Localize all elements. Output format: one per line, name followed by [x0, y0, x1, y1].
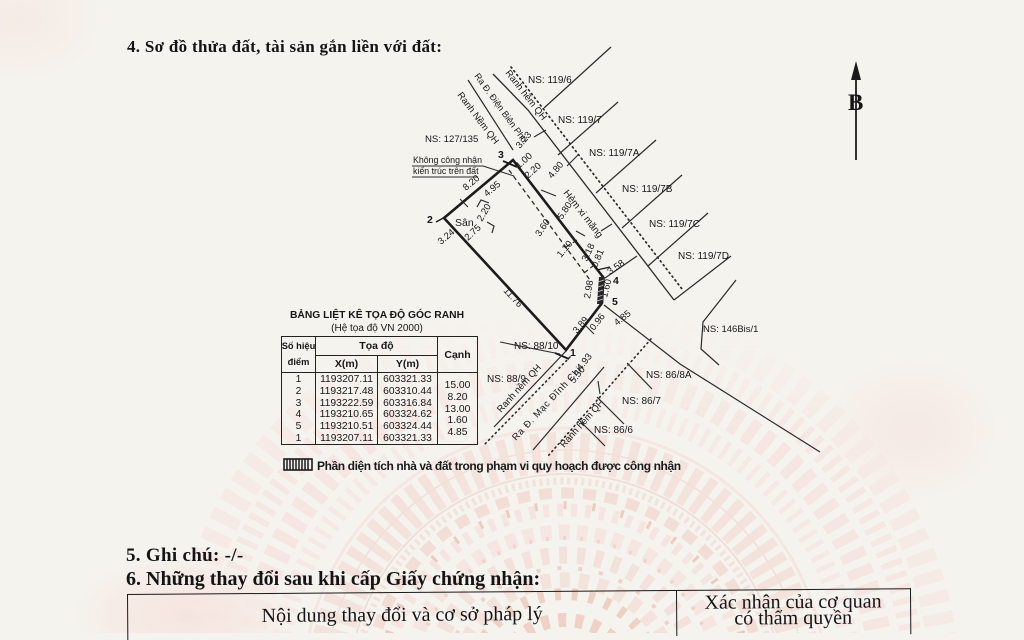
svg-text:Phần diện tích nhà và đất tron: Phần diện tích nhà và đất trong phạm vi …: [317, 459, 681, 473]
svg-text:2: 2: [427, 214, 433, 226]
svg-text:4.80: 4.80: [546, 160, 566, 181]
svg-text:NS: 88/10: NS: 88/10: [514, 341, 559, 352]
svg-text:NS: 119/7B: NS: 119/7B: [622, 184, 673, 195]
svg-text:kiến trúc trên đất: kiến trúc trên đất: [413, 166, 479, 176]
svg-text:11.76: 11.76: [501, 286, 525, 310]
svg-text:NS: 119/7D: NS: 119/7D: [678, 251, 729, 262]
svg-text:1.10: 1.10: [555, 239, 575, 260]
svg-text:NS: 86/6: NS: 86/6: [594, 425, 633, 436]
svg-text:NS: 86/7: NS: 86/7: [622, 396, 661, 407]
svg-text:NS: 119/7: NS: 119/7: [558, 115, 602, 126]
svg-text:3.60: 3.60: [533, 217, 552, 238]
svg-text:3: 3: [498, 149, 504, 161]
svg-text:1: 1: [570, 347, 576, 359]
svg-text:5: 5: [612, 296, 618, 308]
svg-text:3.89: 3.89: [571, 315, 591, 336]
svg-text:NS: 86/8A: NS: 86/8A: [646, 370, 692, 381]
svg-text:2.98: 2.98: [582, 279, 596, 299]
svg-text:NS: 119/7A: NS: 119/7A: [589, 148, 640, 159]
svg-text:NS: 119/6: NS: 119/6: [528, 75, 572, 86]
svg-text:NS: 146Bis/1: NS: 146Bis/1: [703, 324, 758, 335]
svg-text:NS: 119/7C: NS: 119/7C: [649, 219, 700, 230]
svg-text:Không công nhận: Không công nhận: [413, 155, 482, 165]
svg-text:B: B: [848, 90, 863, 115]
svg-text:NS: 127/135: NS: 127/135: [425, 134, 478, 145]
